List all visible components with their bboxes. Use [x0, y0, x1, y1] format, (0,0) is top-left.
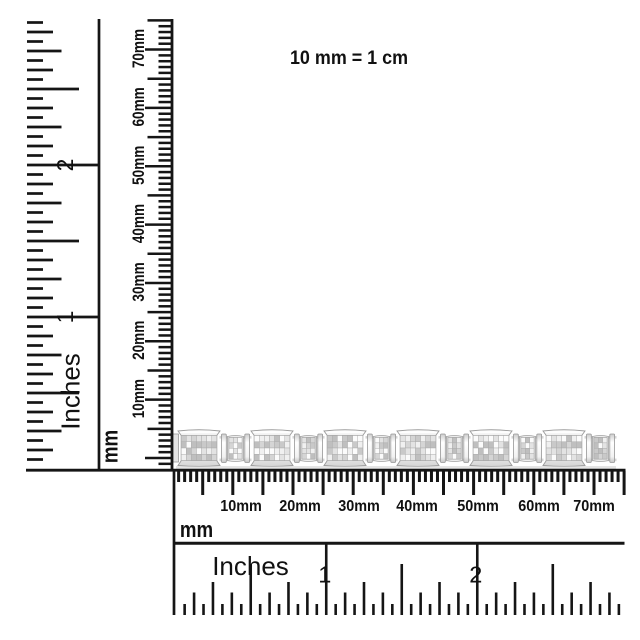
svg-text:1: 1: [318, 562, 331, 588]
svg-text:30mm: 30mm: [338, 498, 380, 516]
svg-text:70mm: 70mm: [573, 498, 615, 516]
svg-text:2: 2: [52, 159, 78, 172]
svg-text:70mm: 70mm: [130, 29, 149, 68]
svg-text:50mm: 50mm: [130, 146, 149, 185]
svg-text:mm: mm: [180, 519, 213, 543]
svg-text:1: 1: [52, 311, 78, 324]
svg-text:50mm: 50mm: [457, 498, 499, 516]
svg-text:10mm: 10mm: [130, 379, 149, 418]
svg-text:Inches: Inches: [212, 551, 289, 581]
svg-text:mm: mm: [99, 430, 123, 463]
svg-text:40mm: 40mm: [396, 498, 438, 516]
svg-text:2: 2: [469, 562, 482, 588]
svg-text:10mm: 10mm: [220, 498, 262, 516]
svg-text:10 mm = 1 cm: 10 mm = 1 cm: [290, 46, 408, 68]
svg-text:30mm: 30mm: [130, 262, 149, 301]
svg-text:20mm: 20mm: [130, 321, 149, 360]
svg-text:40mm: 40mm: [130, 204, 149, 243]
svg-text:20mm: 20mm: [279, 498, 321, 516]
svg-text:Inches: Inches: [56, 353, 86, 430]
svg-text:60mm: 60mm: [130, 87, 149, 126]
svg-text:60mm: 60mm: [518, 498, 560, 516]
